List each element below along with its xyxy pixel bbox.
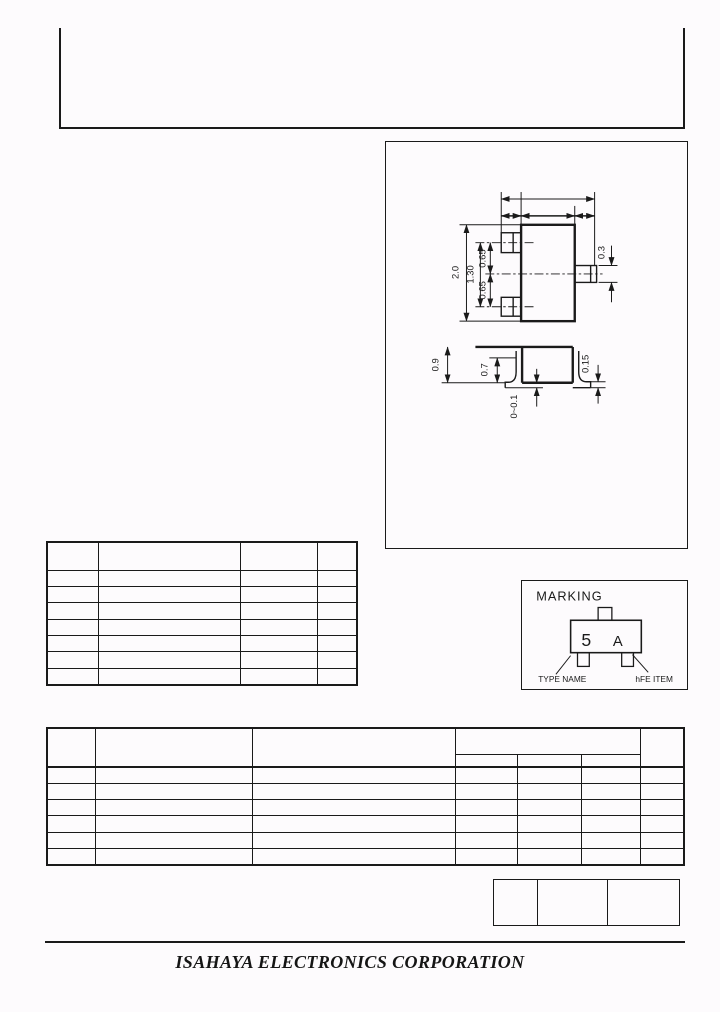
empty-cell: [253, 767, 456, 783]
empty-cell: [538, 880, 608, 926]
empty-cell: [96, 767, 253, 783]
empty-cell: [640, 848, 684, 864]
empty-cell: [240, 636, 317, 652]
empty-cell: [96, 832, 253, 848]
empty-cell: [240, 603, 317, 619]
empty-cell: [96, 728, 253, 767]
empty-cell: [317, 586, 357, 602]
marking-label-hfe-item: hFE ITEM: [635, 674, 673, 684]
empty-cell: [99, 636, 240, 652]
empty-cell: [581, 767, 640, 783]
empty-cell: [47, 767, 96, 783]
empty-cell: [96, 800, 253, 816]
empty-cell: [317, 619, 357, 635]
leader-line-hfe-item: [632, 655, 648, 673]
ratings-group-header-cell: [456, 728, 640, 754]
empty-cell: [47, 816, 96, 832]
empty-cell: [456, 848, 518, 864]
empty-cell: [240, 668, 317, 684]
side-lead-left: [505, 351, 516, 388]
empty-cell: [581, 848, 640, 864]
dim-label-lead-height: 0.7: [478, 363, 489, 376]
empty-cell: [518, 832, 581, 848]
empty-cell: [253, 816, 456, 832]
empty-cell: [99, 603, 240, 619]
empty-cell: [608, 880, 680, 926]
dim-label-lead-width: 0.3: [596, 246, 607, 259]
empty-cell: [47, 832, 96, 848]
empty-cell: [640, 728, 684, 767]
empty-cell: [240, 586, 317, 602]
empty-cell: [518, 816, 581, 832]
marking-lead-top: [598, 608, 612, 621]
marking-hfe-code: A: [613, 634, 623, 650]
marking-title: MARKING: [536, 589, 602, 604]
empty-cell: [581, 754, 640, 767]
empty-cell: [317, 652, 357, 668]
marking-diagram: MARKING 5 A TYPE NAME hFE ITEM: [522, 581, 687, 689]
empty-cell: [47, 800, 96, 816]
empty-cell: [494, 880, 538, 926]
empty-cell: [99, 652, 240, 668]
marking-lead-bottom-left: [578, 653, 590, 667]
empty-cell: [240, 570, 317, 586]
dim-label-overall-height: 2.0: [450, 266, 461, 279]
empty-cell: [96, 783, 253, 799]
empty-cell: [456, 767, 518, 783]
empty-cell: [253, 848, 456, 864]
empty-cell: [581, 800, 640, 816]
ratings-table: [46, 727, 685, 866]
title-box: [59, 28, 685, 129]
empty-cell: [99, 570, 240, 586]
empty-cell: [47, 783, 96, 799]
dim-label-body-height: 0.9: [430, 358, 441, 371]
revision-table: [493, 879, 680, 926]
empty-cell: [240, 619, 317, 635]
empty-cell: [253, 783, 456, 799]
empty-cell: [456, 800, 518, 816]
empty-cell: [47, 586, 99, 602]
centerlines: [475, 243, 602, 307]
empty-cell: [47, 603, 99, 619]
company-name: ISAHAYA ELECTRONICS CORPORATION: [0, 952, 700, 973]
empty-cell: [47, 570, 99, 586]
dim-label-pitch-upper: 0.65: [476, 249, 487, 267]
empty-cell: [581, 816, 640, 832]
empty-cell: [640, 816, 684, 832]
marking-type-code: 5: [581, 630, 591, 650]
empty-cell: [47, 619, 99, 635]
revision-row: [494, 880, 680, 926]
empty-cell: [96, 848, 253, 864]
dim-label-lead-span: 1.30: [464, 265, 475, 283]
empty-cell: [240, 542, 317, 570]
parameter-table: [46, 541, 358, 686]
empty-cell: [99, 542, 240, 570]
empty-cell: [317, 570, 357, 586]
dim-label-standoff: 0~0.1: [508, 395, 519, 419]
empty-cell: [518, 767, 581, 783]
empty-cell: [317, 542, 357, 570]
marking-lead-bottom-right: [622, 653, 634, 667]
empty-cell: [640, 800, 684, 816]
ratings-header-row: [47, 728, 684, 754]
empty-cell: [317, 668, 357, 684]
dim-label-pitch-lower: 0.65: [476, 281, 487, 299]
marking-box: MARKING 5 A TYPE NAME hFE ITEM: [521, 580, 688, 690]
empty-cell: [317, 636, 357, 652]
empty-cell: [96, 816, 253, 832]
empty-cell: [518, 848, 581, 864]
empty-cell: [317, 603, 357, 619]
empty-cell: [456, 832, 518, 848]
package-outline-drawing: 2.0 1.30 0.65 0.65 0.3 0.9 0.7 0~0.1 0.1…: [386, 142, 687, 548]
datasheet-page: { "colors": { "paper": "#fdfbfd", "ink":…: [0, 0, 720, 1012]
empty-cell: [99, 668, 240, 684]
empty-cell: [581, 783, 640, 799]
empty-cell: [47, 848, 96, 864]
package-outline-box: 2.0 1.30 0.65 0.65 0.3 0.9 0.7 0~0.1 0.1…: [385, 141, 688, 549]
dim-label-lead-thickness: 0.15: [580, 355, 591, 373]
empty-cell: [47, 636, 99, 652]
empty-cell: [253, 832, 456, 848]
marking-label-type-name: TYPE NAME: [538, 674, 587, 684]
empty-cell: [640, 783, 684, 799]
empty-cell: [47, 652, 99, 668]
empty-cell: [456, 816, 518, 832]
empty-cell: [253, 728, 456, 767]
leader-line-type-name: [556, 656, 571, 675]
empty-cell: [47, 728, 96, 767]
empty-cell: [99, 619, 240, 635]
empty-cell: [456, 783, 518, 799]
empty-cell: [456, 754, 518, 767]
empty-cell: [581, 832, 640, 848]
empty-cell: [99, 586, 240, 602]
empty-cell: [47, 668, 99, 684]
empty-cell: [47, 542, 99, 570]
empty-cell: [518, 800, 581, 816]
empty-cell: [253, 800, 456, 816]
empty-cell: [518, 783, 581, 799]
empty-cell: [240, 652, 317, 668]
empty-cell: [518, 754, 581, 767]
empty-cell: [640, 767, 684, 783]
footer-rule: [45, 941, 685, 943]
empty-cell: [640, 832, 684, 848]
